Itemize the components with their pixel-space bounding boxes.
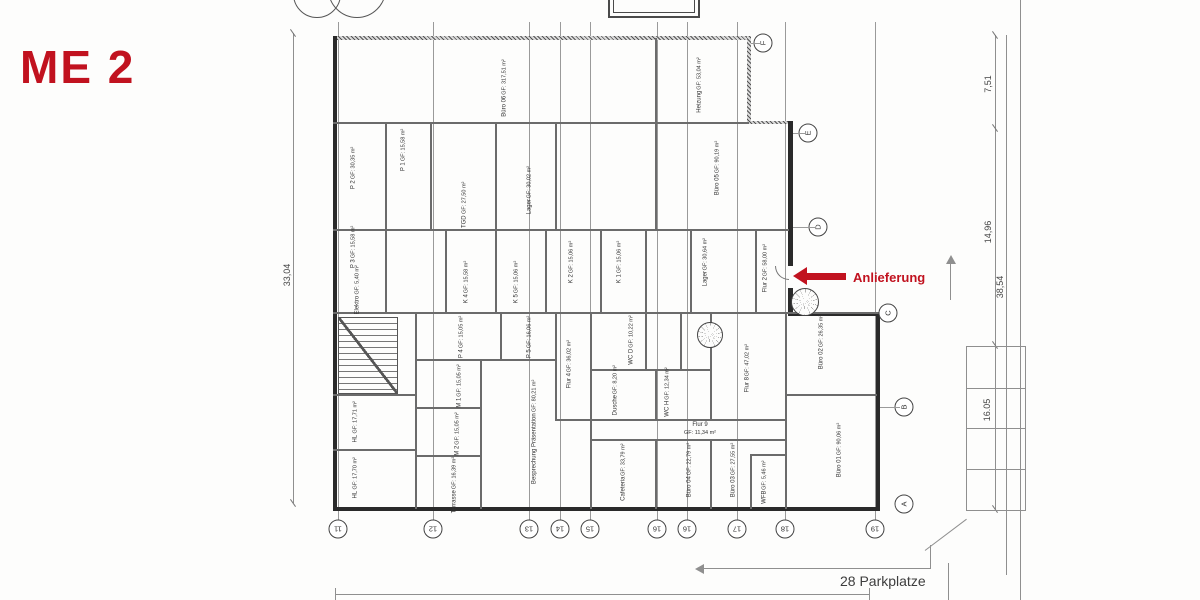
dimension-value: 7,51 xyxy=(983,75,993,93)
interior-wall xyxy=(495,229,497,313)
room-label: WFBGF: 5,46 m² xyxy=(762,460,769,504)
interior-wall xyxy=(655,38,657,123)
room-label: K 5GF: 15,06 m² xyxy=(514,261,521,303)
interior-wall xyxy=(655,369,657,421)
unit-title: ME 2 xyxy=(20,40,135,94)
room-label: HLGF: 17,71 m² xyxy=(353,401,360,442)
parking-arrow-stub xyxy=(930,545,931,569)
grid-line xyxy=(338,22,339,522)
dimension-line xyxy=(335,594,870,595)
room-label: Büro 02GF: 26,35 m² xyxy=(819,315,826,369)
interior-wall xyxy=(545,229,547,313)
room-label: TGDGF: 27,50 m² xyxy=(462,182,469,228)
spiral-stair xyxy=(697,322,723,348)
staircase xyxy=(338,317,398,394)
grid-bubble-A: A xyxy=(895,495,914,514)
grid-stub xyxy=(880,407,900,408)
room-label: Büro 06GF: 317,51 m² xyxy=(502,59,509,116)
interior-wall xyxy=(755,229,757,313)
grid-bubble-14: 14 xyxy=(551,520,570,539)
exterior-wall xyxy=(747,36,751,124)
room-label: K 1GF: 15,06 m² xyxy=(617,241,624,283)
grid-line xyxy=(529,22,530,522)
interior-wall xyxy=(655,123,657,230)
interior-wall xyxy=(655,439,657,509)
room-label: Büro 03GF: 27,55 m² xyxy=(731,443,738,497)
grid-line xyxy=(657,22,658,522)
interior-wall xyxy=(480,360,482,509)
parking-arrow-head xyxy=(695,564,704,574)
dimension-value: 33,04 xyxy=(282,264,292,287)
interior-wall xyxy=(555,123,557,230)
room-label: Flur 9GF: 11,34 m² xyxy=(684,422,716,436)
exterior-wall xyxy=(333,36,751,40)
interior-wall xyxy=(385,229,387,313)
interior-wall xyxy=(690,229,692,313)
room-label: P 1GF: 15,58 m² xyxy=(401,129,408,171)
delivery-label: Anlieferung xyxy=(853,270,925,285)
roof-structure xyxy=(608,0,700,18)
grid-bubble-18: 18 xyxy=(776,520,795,539)
interior-wall xyxy=(750,455,752,509)
room-label: DuscheGF: 8,20 m² xyxy=(613,365,620,416)
interior-wall xyxy=(415,359,557,361)
interior-wall xyxy=(590,313,592,509)
grid-bubble-11: 11 xyxy=(329,520,348,539)
interior-wall xyxy=(590,369,712,371)
room-label: CafeteriaGF: 33,79 m² xyxy=(621,443,628,501)
room-label: LagerGF: 30,64 m² xyxy=(703,238,710,287)
spiral-stair xyxy=(791,288,819,316)
room-label: Flur 4GF: 36,02 m² xyxy=(567,340,574,389)
room-label: K 2GF: 15,06 m² xyxy=(569,241,576,283)
interior-wall xyxy=(645,229,647,313)
grid-stub xyxy=(751,43,761,44)
floorplan-canvas: ME 2 xyxy=(0,0,1200,600)
interior-wall xyxy=(787,394,877,396)
grid-stub xyxy=(793,227,815,228)
grid-bubble-19: 19 xyxy=(866,520,885,539)
parking-arrow-line xyxy=(700,568,930,569)
compass-icon xyxy=(328,0,386,18)
interior-wall xyxy=(415,407,481,409)
delivery-arrow-head xyxy=(793,267,807,285)
site-boundary xyxy=(948,563,949,600)
up-arrow-head xyxy=(946,255,956,264)
interior-wall xyxy=(555,419,787,421)
dimension-tick-end xyxy=(335,588,336,600)
interior-wall xyxy=(645,313,647,370)
room-label: HeizungGF: 53,04 m² xyxy=(697,57,704,112)
room-label: WC HGF: 12,34 m² xyxy=(665,367,672,416)
grid-line xyxy=(560,22,561,522)
site-boundary xyxy=(925,519,967,551)
grid-bubble-15: 15 xyxy=(581,520,600,539)
interior-wall xyxy=(785,313,787,509)
door-swing xyxy=(775,266,789,280)
dimension-value: 14,96 xyxy=(983,221,993,244)
room-label: K 4GF: 15,58 m² xyxy=(464,261,471,303)
delivery-arrow xyxy=(806,273,846,280)
room-label: P 4GF: 15,05 m² xyxy=(459,316,466,358)
interior-wall xyxy=(333,229,789,231)
grid-stub xyxy=(793,133,805,134)
interior-wall xyxy=(500,313,502,360)
interior-wall xyxy=(600,229,602,313)
room-label: M 1GF: 15,05 m² xyxy=(457,364,464,407)
interior-wall xyxy=(430,123,432,230)
interior-wall xyxy=(750,454,787,456)
interior-wall xyxy=(680,313,682,370)
exterior-wall xyxy=(333,36,337,511)
interior-wall xyxy=(385,123,387,230)
grid-bubble-13: 13 xyxy=(520,520,539,539)
room-label: LagerGF: 30,02 m² xyxy=(527,166,534,215)
exterior-wall xyxy=(876,312,880,511)
interior-wall xyxy=(710,439,712,509)
room-label: WC DGF: 10,22 m² xyxy=(629,315,636,364)
room-label: TerrasseGF: 16,39 m² xyxy=(452,457,459,513)
grid-bubble-16b: 16 xyxy=(678,520,697,539)
room-label: Büro 04GF: 22,79 m² xyxy=(687,443,694,497)
parking-stalls xyxy=(966,346,1026,511)
grid-line xyxy=(433,22,434,522)
interior-wall xyxy=(333,394,416,396)
exterior-wall xyxy=(747,121,792,124)
interior-wall xyxy=(590,439,787,441)
room-label: ElektroGF: 5,40 m² xyxy=(355,265,362,314)
interior-wall xyxy=(333,449,416,451)
up-arrow-line xyxy=(950,262,951,300)
room-label: HLGF: 17,70 m² xyxy=(353,457,360,498)
interior-wall xyxy=(333,122,749,124)
dimension-value: 38,54 xyxy=(995,276,1005,299)
grid-bubble-17: 17 xyxy=(728,520,747,539)
room-label: Büro 05GF: 90,19 m² xyxy=(715,141,722,195)
parking-label: 28 Parkplatze xyxy=(840,573,926,589)
interior-wall xyxy=(495,123,497,230)
room-label: P 2GF: 30,35 m² xyxy=(351,147,358,189)
interior-wall xyxy=(445,229,447,313)
room-label: Flur 8GF: 47,02 m² xyxy=(745,344,752,393)
dimension-line xyxy=(293,33,294,503)
room-label: Besprechung PräsentationGF: 80,21 m² xyxy=(532,380,539,484)
room-label: Flur 2GF: 58,00 m² xyxy=(763,244,770,293)
interior-wall xyxy=(555,313,557,421)
grid-bubble-12: 12 xyxy=(424,520,443,539)
grid-bubble-C: C xyxy=(879,304,898,323)
room-label: P 5GF: 16,06 m² xyxy=(527,316,534,358)
room-label: Büro 01GF: 90,06 m² xyxy=(837,423,844,477)
room-label: P 3GF: 15,58 m² xyxy=(351,226,358,268)
interior-wall xyxy=(415,313,417,509)
room-label: M 2GF: 15,05 m² xyxy=(455,412,462,455)
grid-bubble-16: 16 xyxy=(648,520,667,539)
dimension-tick-end xyxy=(869,588,870,600)
interior-wall xyxy=(415,455,481,457)
